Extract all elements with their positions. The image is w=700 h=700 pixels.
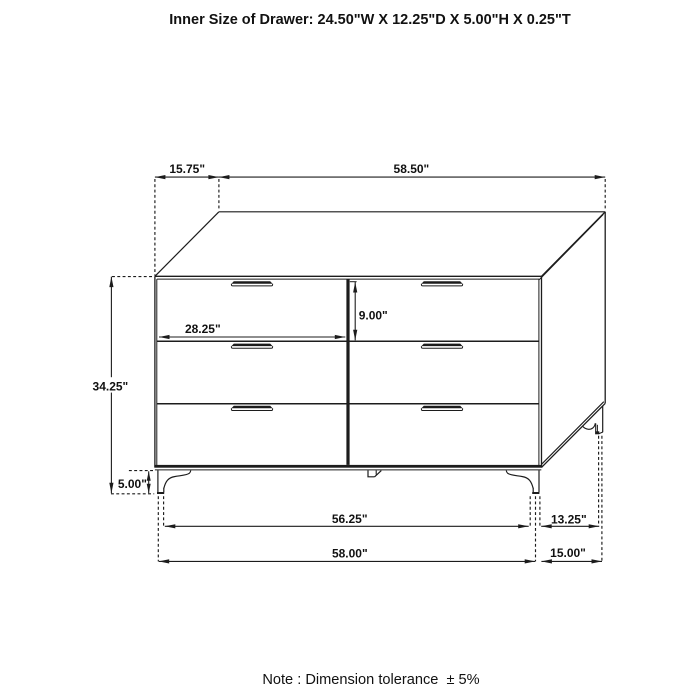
svg-text:56.25": 56.25" bbox=[332, 512, 368, 526]
svg-text:28.25": 28.25" bbox=[185, 322, 221, 336]
svg-text:15.75": 15.75" bbox=[169, 162, 205, 176]
svg-text:13.25": 13.25" bbox=[551, 512, 587, 526]
svg-text:5.00": 5.00" bbox=[118, 477, 147, 491]
svg-text:15.00": 15.00" bbox=[550, 546, 586, 560]
svg-text:9.00": 9.00" bbox=[359, 309, 388, 323]
svg-text:58.00": 58.00" bbox=[332, 546, 368, 560]
svg-text:34.25": 34.25" bbox=[93, 379, 129, 393]
svg-text:58.50": 58.50" bbox=[394, 162, 430, 176]
